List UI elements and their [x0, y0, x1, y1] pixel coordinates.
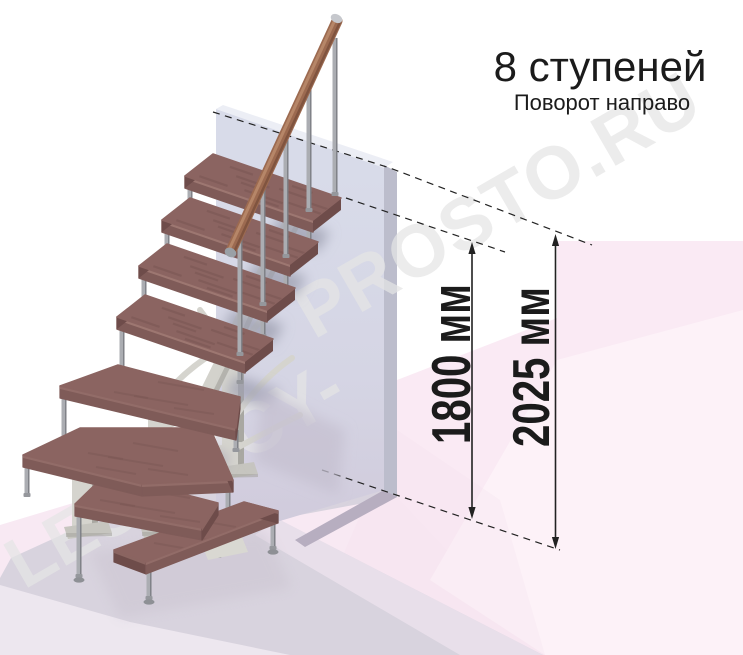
svg-text:1800 мм: 1800 мм — [420, 284, 482, 444]
svg-text:2025 мм: 2025 мм — [503, 287, 561, 447]
svg-text:8 ступеней: 8 ступеней — [494, 43, 707, 90]
svg-text:Поворот направо: Поворот направо — [514, 90, 690, 115]
